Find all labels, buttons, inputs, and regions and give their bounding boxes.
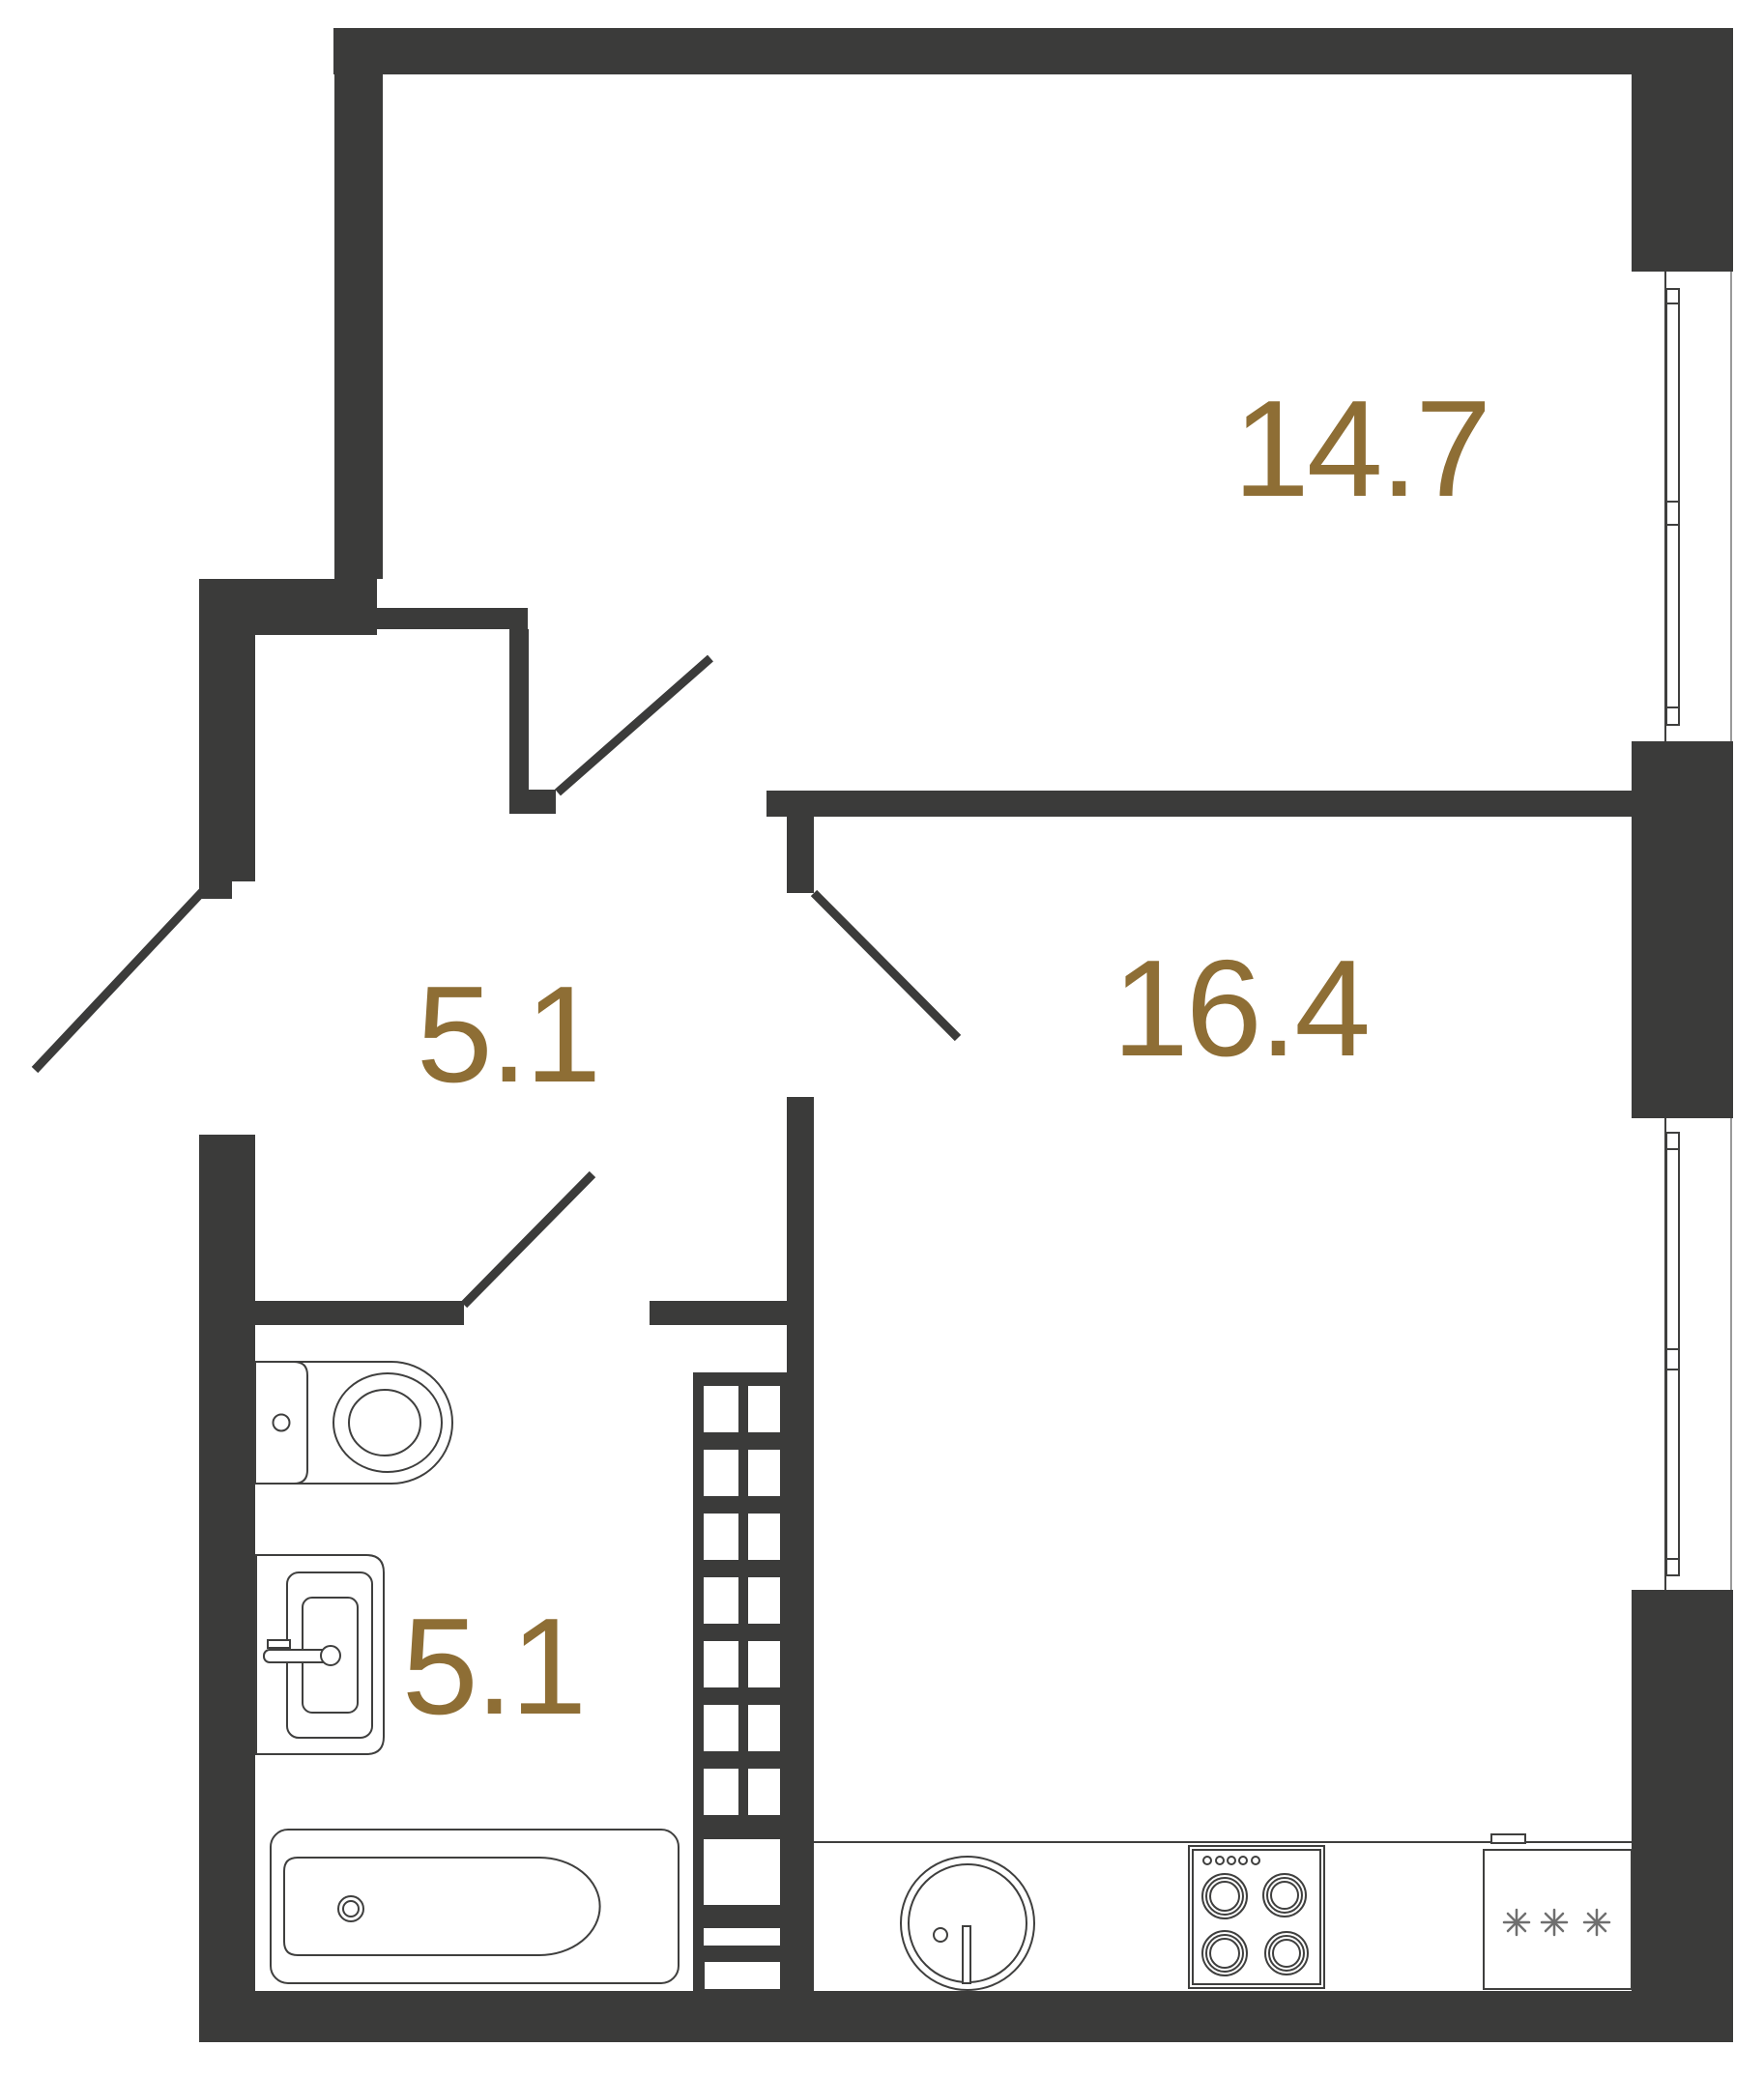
wall-bathroom-top-right	[650, 1301, 787, 1325]
washbasin	[256, 1555, 384, 1754]
toilet	[255, 1362, 452, 1484]
wall-right-bottom	[1632, 1590, 1733, 2042]
sink-faucet	[963, 1926, 970, 1983]
room-label-bathroom: 5.1	[402, 1590, 584, 1744]
wall-living-left	[334, 28, 383, 579]
refrigerator-hinge	[1491, 1834, 1525, 1843]
wall-kitchen-left-upper	[787, 817, 814, 893]
floor-plan: 14.7 16.4 5.1 5.1	[0, 0, 1764, 2076]
refrigerator	[1484, 1834, 1632, 1989]
cooktop-knob	[1228, 1857, 1235, 1864]
cooktop-knob	[1252, 1857, 1259, 1864]
wall-kitchen-left-lower	[787, 1097, 814, 1372]
room-label-living: 14.7	[1233, 372, 1489, 526]
wall-hall-living-stub	[509, 629, 529, 790]
washbasin-faucet-head	[321, 1646, 340, 1665]
wall-right-middle	[1632, 741, 1733, 1118]
toilet-bowl-inner	[349, 1390, 420, 1456]
room-label-kitchen-living: 16.4	[1113, 932, 1368, 1085]
window-living	[1665, 272, 1731, 741]
bathtub-inner	[284, 1858, 600, 1955]
wall-bathroom-top-left	[255, 1301, 464, 1325]
window-frame	[1666, 289, 1679, 725]
cooktop	[1189, 1846, 1324, 1988]
kitchen-door-leaf	[814, 893, 958, 1038]
bathtub-drain-inner	[343, 1901, 359, 1917]
wall-left-upper	[199, 579, 255, 881]
sink-drain	[934, 1928, 947, 1942]
cooktop-knob	[1203, 1857, 1211, 1864]
bathroom-door-leaf	[464, 1174, 593, 1305]
snowflake-icon	[1542, 1910, 1567, 1935]
cooktop-knob	[1239, 1857, 1247, 1864]
window-frame	[1666, 1133, 1679, 1575]
wall-living-kitchen	[766, 791, 1632, 817]
living-door-leaf	[558, 658, 710, 793]
door-jamb-living	[509, 790, 556, 814]
window-kitchen	[1665, 1118, 1731, 1590]
toilet-button	[274, 1415, 290, 1431]
kitchen-sink	[901, 1857, 1034, 1990]
cooktop-knob	[1216, 1857, 1224, 1864]
wall-left-lower	[199, 1135, 255, 2042]
snowflake-icon	[1584, 1910, 1609, 1935]
wall-hall-living	[334, 608, 528, 629]
room-labels: 14.7 16.4 5.1 5.1	[402, 372, 1489, 1744]
wall-top	[333, 28, 1733, 74]
entry-door-leaf	[35, 892, 202, 1070]
ventilation-shaft	[693, 1372, 814, 1991]
wall-bottom	[199, 1991, 1733, 2042]
bathtub	[271, 1830, 679, 1983]
room-label-hallway: 5.1	[417, 958, 598, 1111]
washbasin-tap-base	[268, 1640, 290, 1648]
snowflake-icon	[1504, 1910, 1529, 1935]
floor-plan-canvas: 14.7 16.4 5.1 5.1	[0, 0, 1764, 2076]
wall-right-top	[1632, 28, 1733, 272]
